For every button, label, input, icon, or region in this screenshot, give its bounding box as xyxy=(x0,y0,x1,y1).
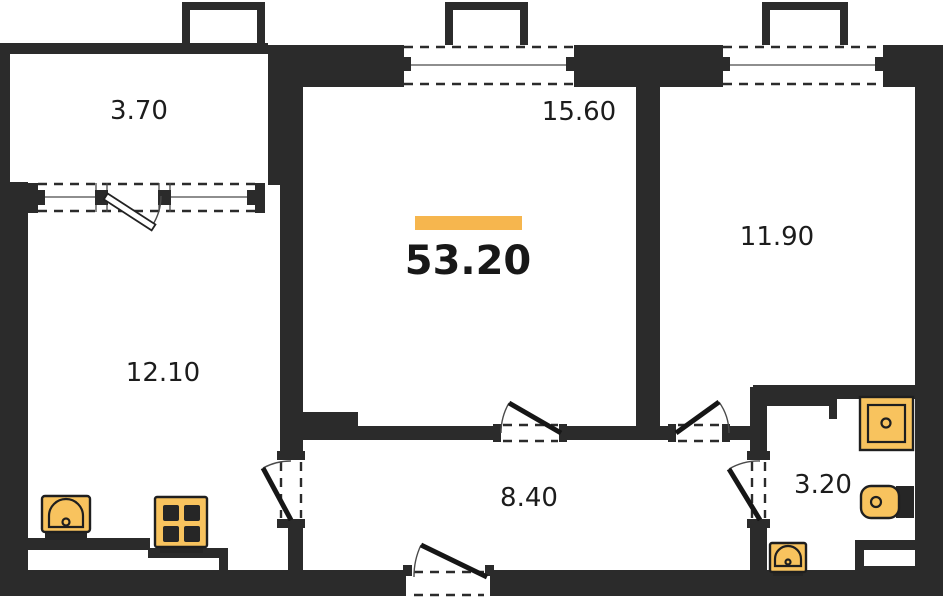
door-stop xyxy=(277,519,305,528)
kitchen-door xyxy=(263,451,305,528)
pilaster-3-top xyxy=(762,2,848,10)
balcony-window-band xyxy=(28,183,265,213)
right-wall xyxy=(915,85,943,572)
bathroom-left-wall-lower xyxy=(750,528,767,572)
hallway-top-wall-step xyxy=(303,412,358,440)
window-stop xyxy=(721,57,730,71)
door-stop xyxy=(668,424,676,442)
pilaster-2-right xyxy=(520,2,528,45)
hallway-top-wall-2 xyxy=(567,426,668,440)
living-room-door xyxy=(493,403,567,442)
total-area-accent-bar xyxy=(415,216,522,230)
facade-pilasters xyxy=(182,2,848,45)
stove-burner xyxy=(163,505,179,521)
hallway-area-label: 8.40 xyxy=(500,483,558,513)
window-jamb xyxy=(883,45,892,87)
door-swing-arc xyxy=(263,461,291,468)
door-swing-arc xyxy=(729,461,760,469)
window-glazing-lines xyxy=(38,183,255,212)
entrance-door xyxy=(403,545,494,595)
wall-living-bedroom xyxy=(636,85,660,426)
top-wall-corner xyxy=(890,45,943,87)
window-stop xyxy=(247,190,256,205)
bathroom-duct-inset xyxy=(864,550,915,566)
bottom-wall-right xyxy=(490,570,943,596)
left-wall xyxy=(0,182,28,596)
kitchen-area-label: 12.10 xyxy=(126,358,200,388)
door-leaf xyxy=(104,193,156,230)
wall-kitchen-living-upper xyxy=(268,45,303,185)
window-stop xyxy=(875,57,884,71)
window-stop xyxy=(402,57,411,71)
window-jamb xyxy=(574,45,583,87)
door-leaf xyxy=(509,403,561,433)
door-stop xyxy=(493,424,501,442)
stove-burner xyxy=(184,505,200,521)
kitchen-counter-3 xyxy=(219,556,228,572)
door-leaf xyxy=(263,468,291,520)
bedroom-window xyxy=(714,45,892,87)
door-opening-dashes xyxy=(414,572,484,595)
stove-burner xyxy=(184,526,200,542)
total-area-value: 53.20 xyxy=(405,238,532,284)
bottom-wall-left xyxy=(0,570,406,596)
door-stop xyxy=(403,565,412,576)
door-leaf xyxy=(729,469,760,520)
window-stop xyxy=(36,190,45,205)
balcony-area-label: 3.70 xyxy=(110,96,168,126)
total-area-block: 53.20 xyxy=(405,216,532,284)
bathroom-duct-stub-h xyxy=(767,399,837,406)
shower xyxy=(860,397,913,450)
balcony-parapet-left xyxy=(0,43,10,183)
door-leaf xyxy=(676,402,719,433)
room-labels: 3.70 15.60 11.90 12.10 8.40 3.20 xyxy=(110,96,852,513)
floor-plan-drawing: 3.70 15.60 11.90 12.10 8.40 3.20 53.20 xyxy=(0,0,943,600)
wall-kitchen-lower xyxy=(288,528,303,572)
window-stop xyxy=(566,57,575,71)
door-stop xyxy=(747,451,770,460)
stove-burner xyxy=(163,526,179,542)
pilaster-2-top xyxy=(445,2,528,10)
hallway-top-wall-1 xyxy=(355,426,500,440)
bedroom-area-label: 11.90 xyxy=(740,222,814,252)
top-wall-b xyxy=(580,45,716,87)
window-jamb xyxy=(255,183,265,213)
floor-plan: 3.70 15.60 11.90 12.10 8.40 3.20 53.20 xyxy=(0,0,943,600)
pilaster-1-right xyxy=(257,2,265,45)
bathroom-door xyxy=(729,451,770,528)
door-stop xyxy=(277,451,305,460)
bathroom-area-label: 3.20 xyxy=(794,470,852,500)
balcony-parapet-top xyxy=(0,43,268,54)
wall-kitchen-living-mid xyxy=(280,185,303,452)
stove xyxy=(155,497,207,553)
pilaster-3-right xyxy=(840,2,848,45)
bathroom-duct-stub-v xyxy=(829,399,837,419)
toilet xyxy=(861,486,914,518)
bathroom-sink xyxy=(770,543,806,576)
pilaster-1-top xyxy=(182,2,265,10)
living-room-window xyxy=(395,45,583,87)
living-room-area-label: 15.60 xyxy=(542,97,616,127)
bedroom-door xyxy=(668,402,730,442)
kitchen-sink xyxy=(42,496,90,540)
door-swing-arc xyxy=(501,403,509,433)
